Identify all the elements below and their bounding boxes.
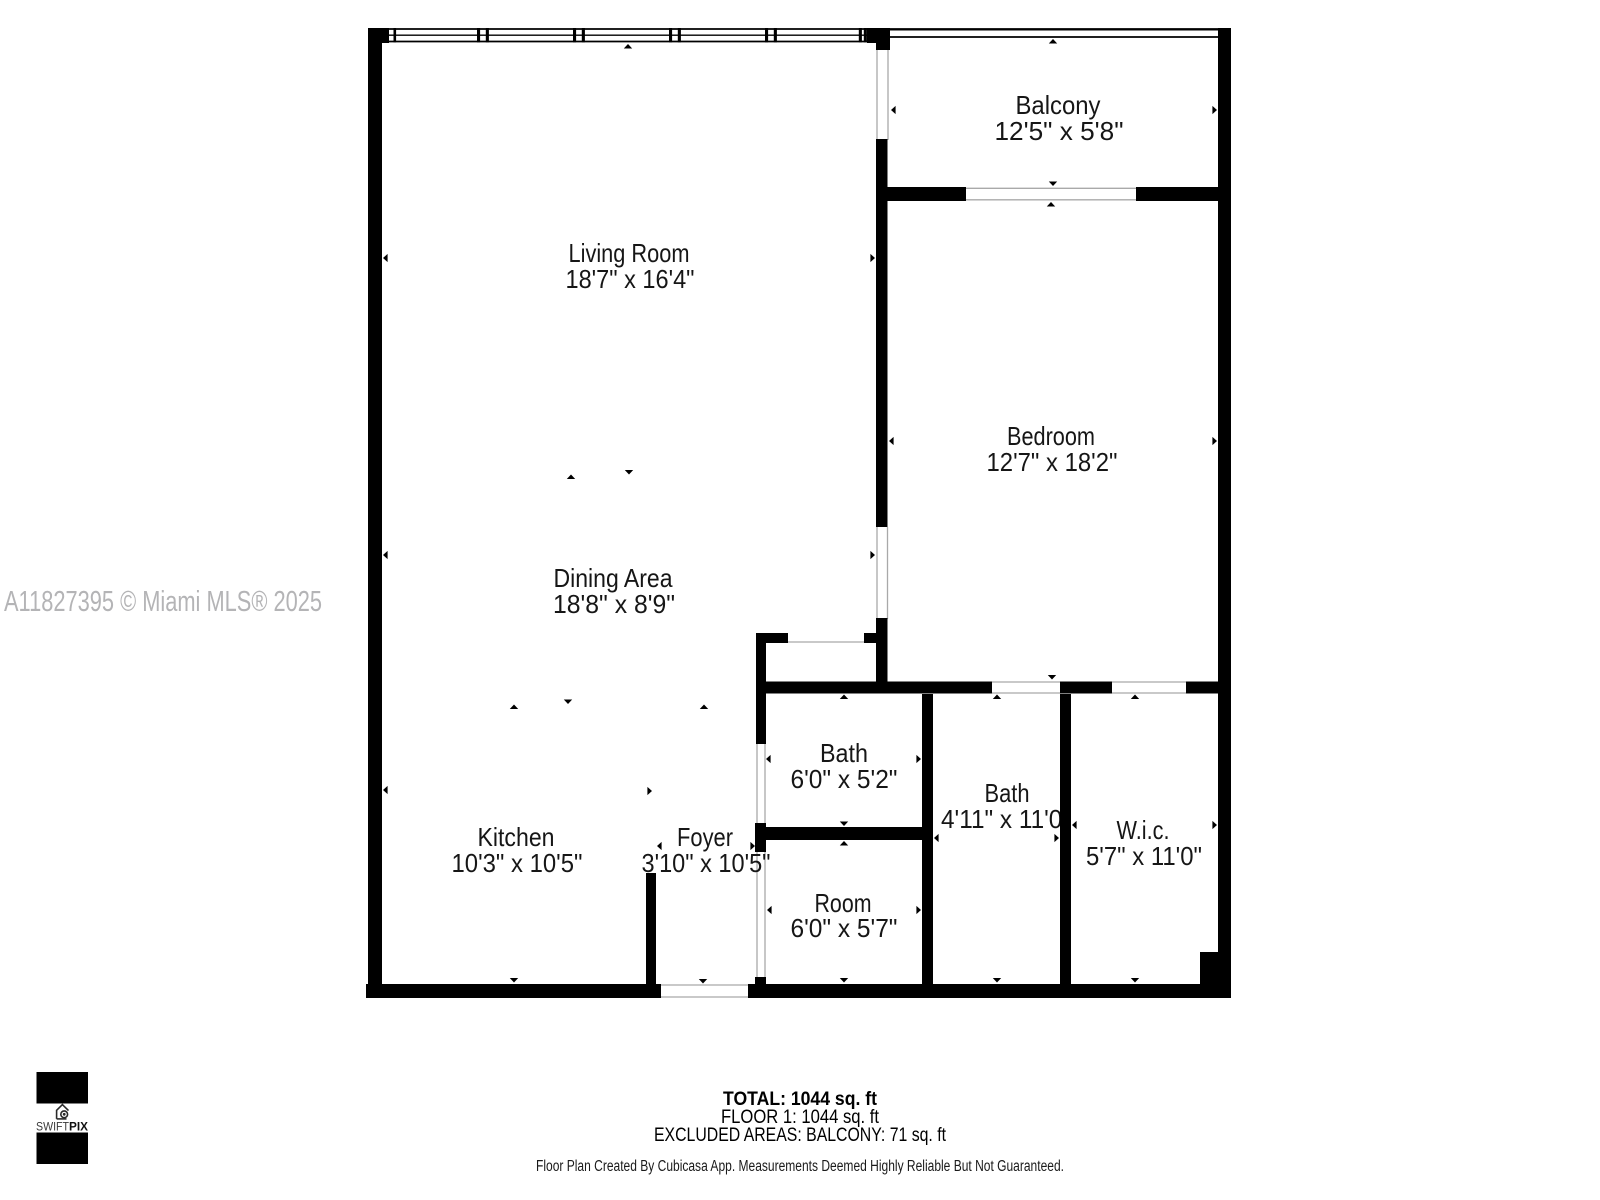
svg-text:10'3" x 10'5": 10'3" x 10'5" (452, 848, 583, 878)
svg-text:5'7" x 11'0": 5'7" x 11'0" (1086, 841, 1202, 871)
svg-text:12'5" x 5'8": 12'5" x 5'8" (995, 116, 1124, 146)
svg-text:Floor Plan Created By Cubicasa: Floor Plan Created By Cubicasa App. Meas… (536, 1158, 1064, 1175)
svg-text:EXCLUDED AREAS: BALCONY: 71 sq: EXCLUDED AREAS: BALCONY: 71 sq. ft (654, 1125, 947, 1146)
svg-text:PIX: PIX (69, 1122, 88, 1134)
svg-text:SWIFT: SWIFT (36, 1122, 69, 1134)
svg-text:6'0" x 5'2": 6'0" x 5'2" (791, 764, 898, 794)
svg-text:6'0" x 5'7": 6'0" x 5'7" (791, 913, 898, 943)
svg-text:3'10" x 10'5": 3'10" x 10'5" (642, 848, 771, 878)
svg-text:18'7" x 16'4": 18'7" x 16'4" (566, 264, 695, 294)
svg-text:A11827395 © Miami MLS® 2025: A11827395 © Miami MLS® 2025 (4, 586, 322, 618)
svg-text:18'8" x 8'9": 18'8" x 8'9" (553, 589, 675, 619)
svg-text:4'11" x 11'0": 4'11" x 11'0" (941, 804, 1071, 834)
svg-text:12'7" x 18'2": 12'7" x 18'2" (987, 447, 1118, 477)
